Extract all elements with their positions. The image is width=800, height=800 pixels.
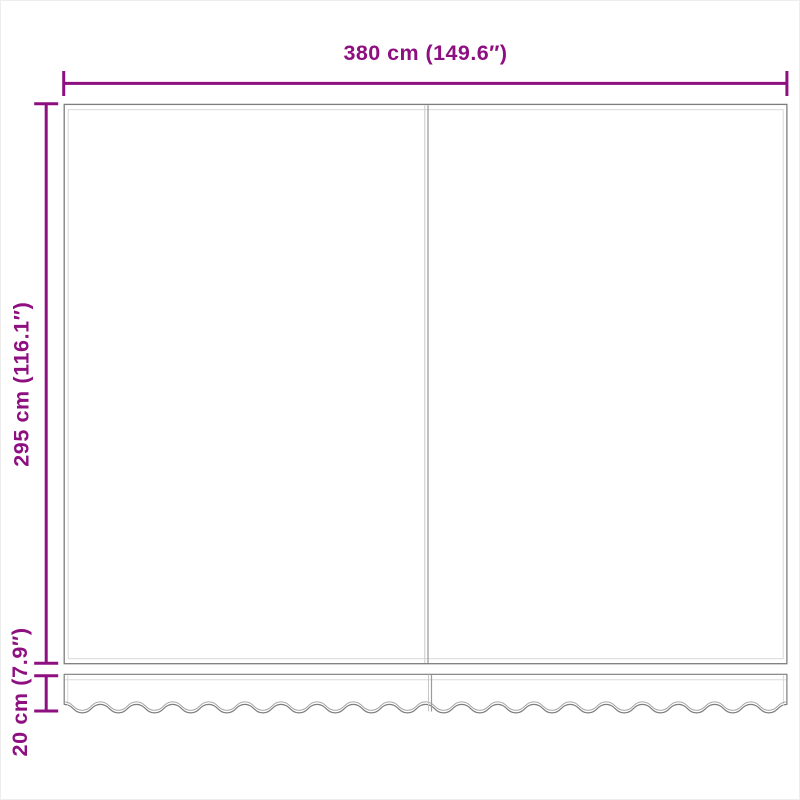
svg-text:20 cm (7.9″): 20 cm (7.9″) [8,627,32,756]
svg-text:380 cm (149.6″): 380 cm (149.6″) [343,41,507,65]
svg-text:295 cm (116.1″): 295 cm (116.1″) [9,302,33,467]
